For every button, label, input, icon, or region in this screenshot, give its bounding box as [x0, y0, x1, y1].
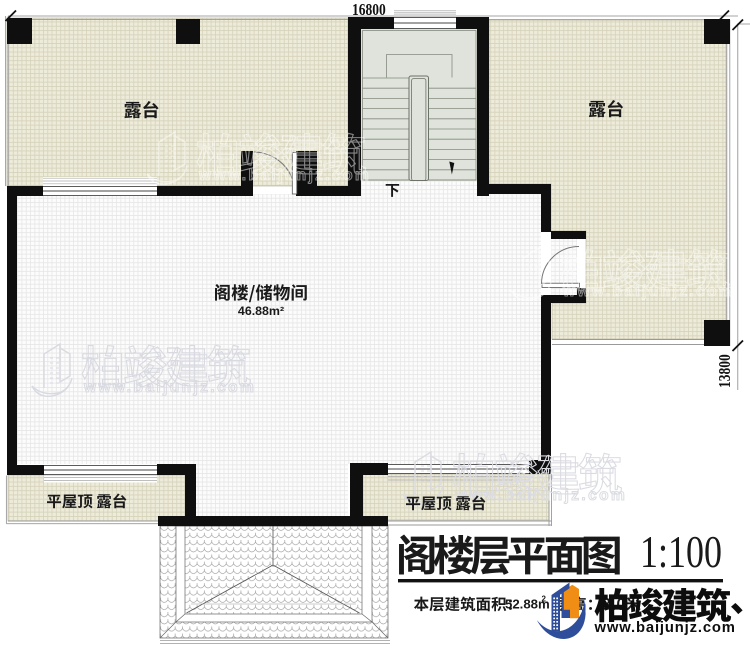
svg-text:1:100: 1:100 [640, 527, 722, 577]
svg-text:13800: 13800 [717, 354, 734, 388]
svg-text:2: 2 [542, 595, 547, 604]
svg-text:16800: 16800 [352, 2, 386, 19]
svg-text:46.88m²: 46.88m² [238, 304, 284, 318]
svg-text:www.baijunjz.com: www.baijunjz.com [594, 620, 736, 636]
